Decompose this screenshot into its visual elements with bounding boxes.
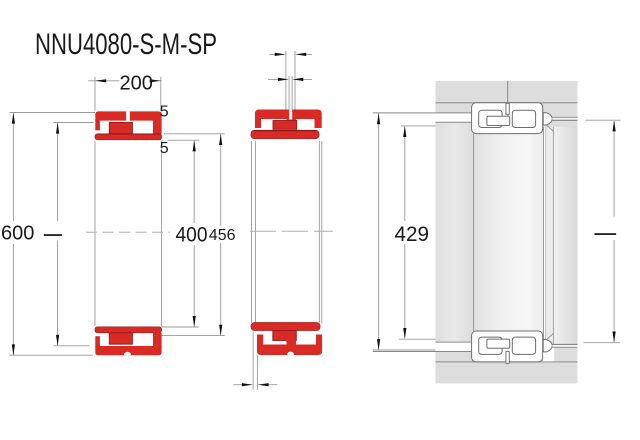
svg-text:456: 456 (209, 227, 236, 244)
svg-text:200: 200 (120, 73, 153, 95)
svg-text:600: 600 (1, 223, 34, 245)
svg-text:NNU4080-S-M-SP: NNU4080-S-M-SP (35, 28, 217, 61)
svg-text:429: 429 (395, 222, 430, 246)
svg-text:5: 5 (160, 104, 169, 121)
svg-text:5: 5 (160, 140, 169, 157)
svg-text:400: 400 (176, 222, 208, 246)
